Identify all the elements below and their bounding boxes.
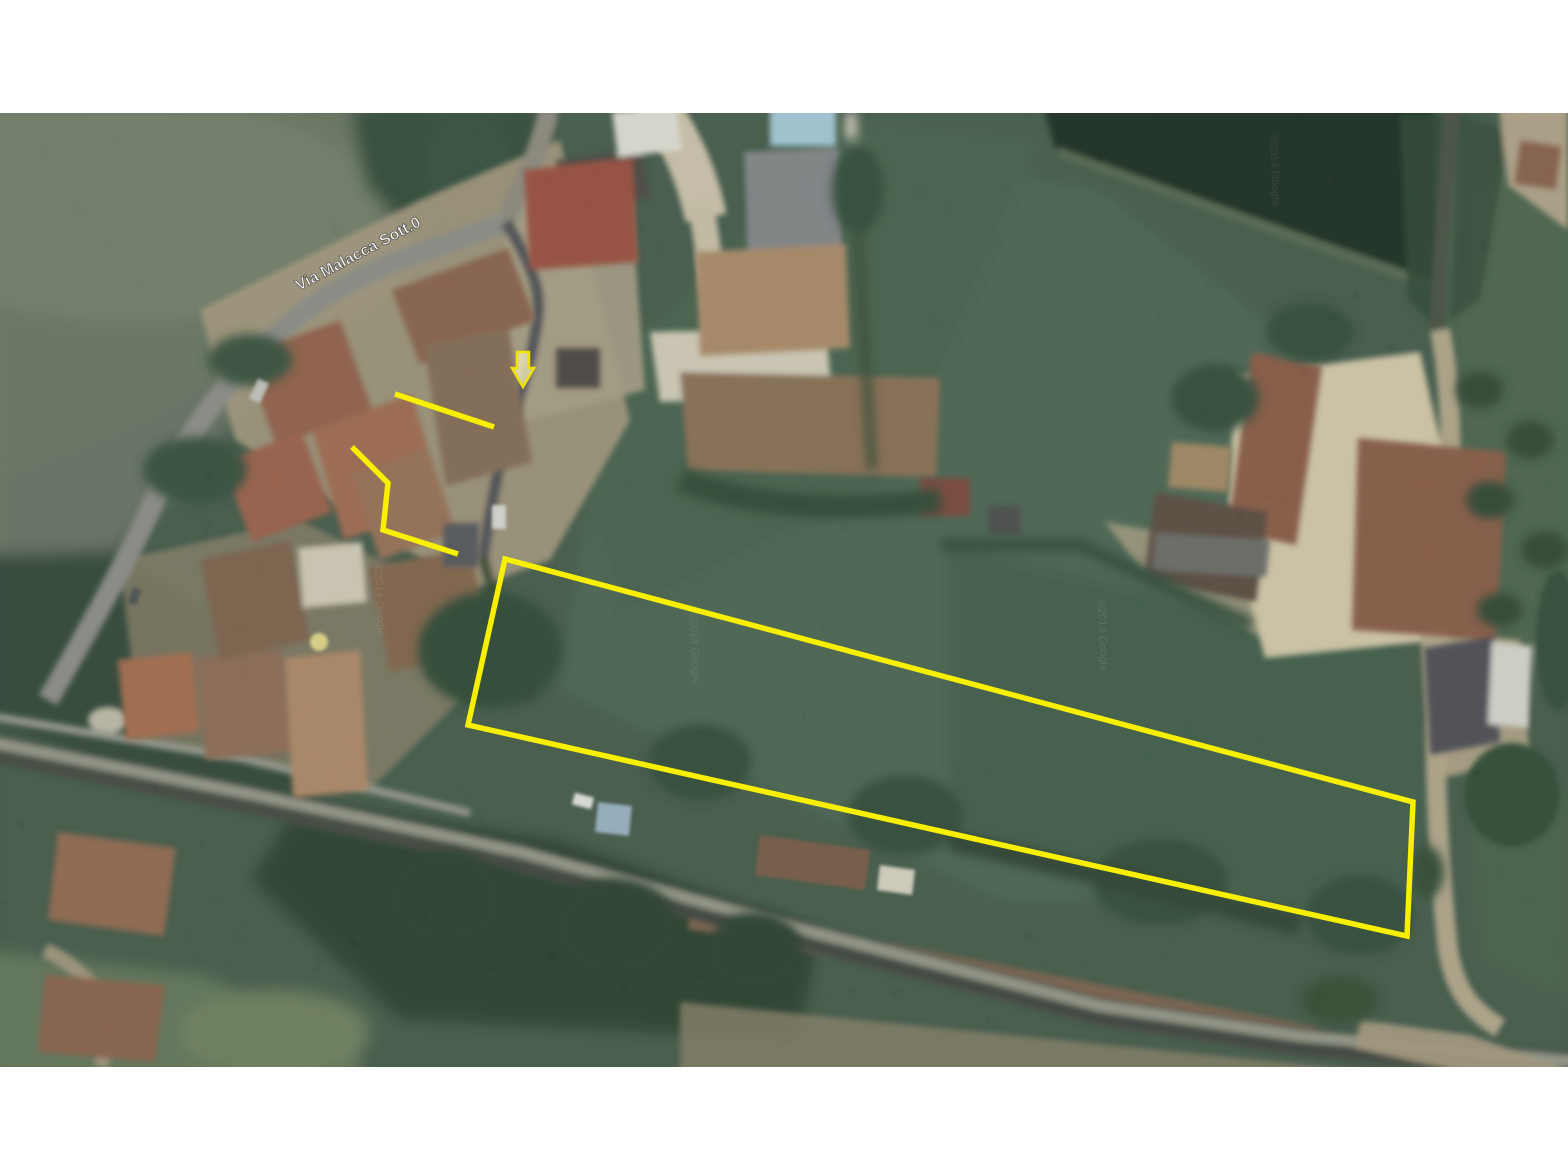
svg-text:©2014 Google: ©2014 Google <box>372 565 386 636</box>
svg-text:©2014 Google: ©2014 Google <box>1095 600 1109 671</box>
svg-text:©2014 Google: ©2014 Google <box>687 612 701 683</box>
svg-text:©2014 Google: ©2014 Google <box>1267 135 1281 206</box>
